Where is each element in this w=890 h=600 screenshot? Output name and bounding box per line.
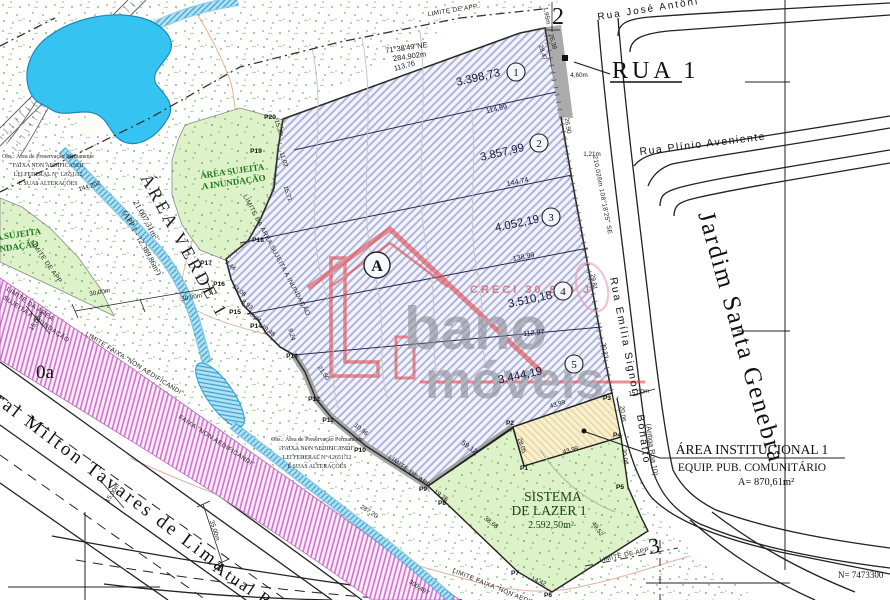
point-label: P15: [229, 309, 241, 316]
point-label: P13: [286, 353, 298, 360]
point-label: P17: [200, 260, 212, 267]
lot-number: 4: [560, 286, 566, 298]
point-label: P14: [250, 323, 262, 330]
meas-label: 4,60m: [570, 72, 588, 79]
point-label: P12: [308, 396, 320, 403]
point-label: P5: [616, 484, 624, 491]
lot-number: 2: [536, 138, 542, 150]
obs-line: Obs.: Área de Preservação Permanente: [2, 152, 94, 160]
point-label: P11: [322, 417, 334, 424]
obs-line: E SUAS ALTERAÇÕES: [18, 179, 77, 187]
lot-number: 3: [548, 212, 554, 224]
lazer-title: SISTEMA: [524, 489, 582, 504]
street-rua1: RUA 1: [612, 58, 699, 84]
obs-line: "FAIXA NON AEDIFICANDI": [10, 163, 86, 169]
institucional-size: A= 870,61m²: [738, 477, 794, 488]
point-label: P6: [544, 592, 552, 599]
point-label: P4: [613, 432, 621, 439]
point-label: P7: [511, 570, 519, 577]
point-label: P3: [603, 395, 611, 402]
point-label: P16: [213, 281, 225, 288]
sheet-marker-2: 2: [552, 4, 564, 30]
obs-line: Obs.: Área de Preservação Permanente: [271, 435, 363, 443]
point-label: P1: [520, 465, 528, 472]
lazer-size: 2.592,50m²: [528, 520, 574, 531]
obs-line: LEI FEDERAL N° 12651/12: [283, 454, 352, 461]
lot-number: 1: [513, 67, 519, 79]
obs-line: "FAIXA NON AEDIFICANDI": [279, 446, 355, 452]
point-label: P8: [438, 500, 446, 507]
point-label: P19: [250, 148, 262, 155]
obs-line: LEI FEDERAL N° 12651/12: [14, 171, 83, 178]
institucional-sub: EQUIP. PUB. COMUNITÁRIO: [678, 460, 826, 474]
lot-number: 5: [571, 359, 577, 371]
obs-line: E SUAS ALTERAÇÕES: [287, 462, 346, 470]
point-label: P9: [419, 486, 427, 493]
marker-0a: 0a: [36, 362, 55, 383]
meas-label: 1,21m: [583, 151, 601, 158]
point-label: P20: [264, 114, 276, 121]
point-label: P2: [506, 420, 514, 427]
block-a-label: A: [371, 258, 383, 275]
point-label: P18: [252, 237, 264, 244]
point-label: P10: [354, 447, 366, 454]
cadastral-map: CRECI 30.970 J bano móveis 3.398,73 3.85…: [0, 0, 890, 600]
institucional-title: ÁREA INSTITUCIONAL 1: [676, 442, 829, 457]
rua1-marker-icon: [562, 55, 568, 61]
grid-north-label: N= 7473300: [838, 570, 884, 580]
lazer-title-2: DE LAZER 1: [512, 503, 587, 518]
map-canvas: CRECI 30.970 J bano móveis 3.398,73 3.85…: [0, 0, 890, 600]
